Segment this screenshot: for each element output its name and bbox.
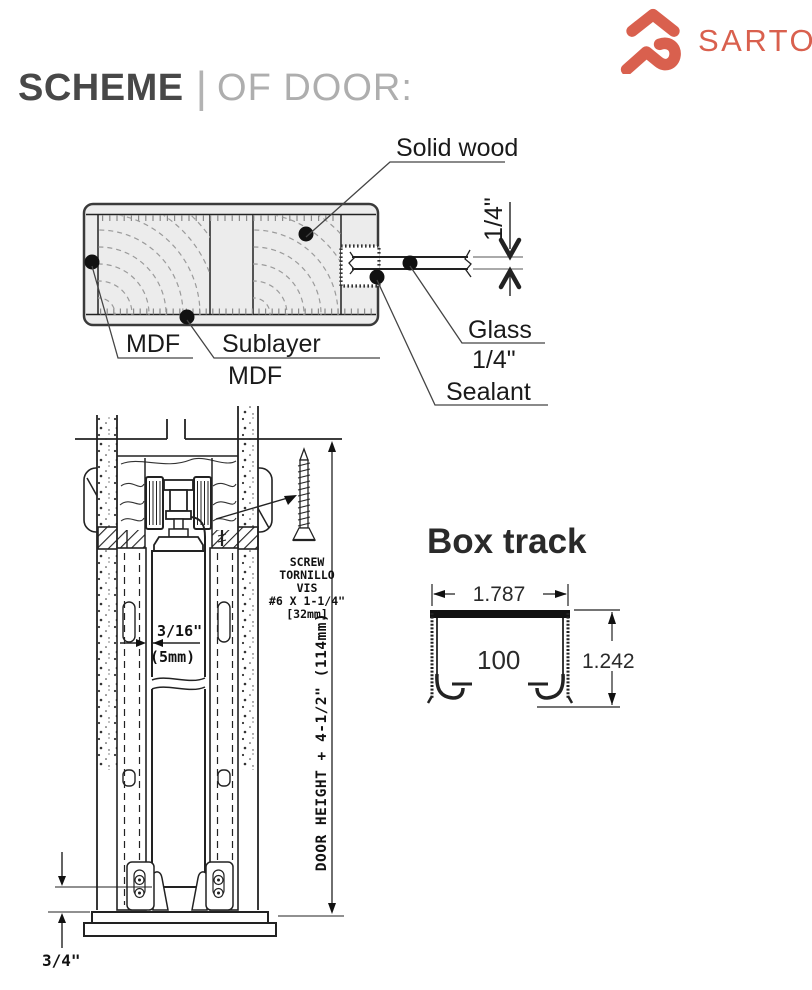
label-screw-line5: [32mm] (286, 607, 328, 621)
track-mechanism-diagram: 3/16" (5mm) 3/4" DOOR HEIGHT + 4-1/2" (1… (42, 406, 345, 970)
callout-dot-sealant (370, 270, 385, 285)
label-glass-thickness: 1/4" (480, 197, 508, 241)
label-door-height: DOOR HEIGHT + 4-1/2" (114mm) (314, 613, 330, 871)
callout-dot-solid-wood (299, 227, 314, 242)
box-track-height-label: 1.242 (582, 650, 635, 673)
hatch-block-left (98, 527, 146, 549)
door-height-dimension: DOOR HEIGHT + 4-1/2" (114mm) (278, 441, 344, 916)
door-section-body (84, 204, 378, 325)
label-solid-wood: Solid wood (396, 134, 518, 162)
scheme-of-door-page: SCHEME | OF DOOR: SARTO (0, 0, 812, 990)
floor-plate-bottom (84, 923, 276, 936)
label-screw-line2: TORNILLO (279, 568, 334, 582)
door-panel (152, 551, 205, 887)
label-sublayer-line2: MDF (228, 362, 282, 390)
label-screw-line1: SCREW (290, 555, 325, 569)
box-track-width-dimension: 1.787 (432, 583, 568, 606)
label-mdf: MDF (126, 330, 180, 358)
wall-stud-left (97, 415, 117, 770)
box-track-height-dimension: 1.242 (537, 610, 635, 707)
label-sublayer-line1: Sublayer (222, 330, 321, 358)
glass-thickness-dimension: 1/4" (480, 197, 519, 296)
label-glass-line2: 1/4" (472, 346, 516, 374)
floor-plate-top (92, 912, 268, 923)
label-gap-inches: 3/16" (157, 622, 202, 640)
label-screw-line4: #6 X 1-1/4" (269, 594, 345, 608)
box-track-profile: 100 (428, 610, 572, 703)
box-track-width-label: 1.787 (473, 583, 526, 606)
schematic-canvas: 1/4" Solid wood MDF Sub (0, 0, 812, 990)
hatch-block-right (210, 527, 258, 549)
label-floor-clearance: 3/4" (42, 951, 81, 970)
wall-stud-right (238, 406, 258, 770)
callout-dot-glass (403, 256, 418, 271)
label-screw-line3: VIS (297, 581, 318, 595)
callout-dot-sublayer (180, 310, 195, 325)
label-glass-line1: Glass (468, 316, 532, 344)
label-sealant: Sealant (446, 378, 531, 406)
door-cross-section-diagram: 1/4" Solid wood MDF Sub (0, 134, 548, 449)
box-track-diagram: Box track 100 (427, 522, 635, 707)
label-gap-mm: (5mm) (150, 648, 195, 666)
box-track-inner-label: 100 (477, 645, 520, 675)
box-track-title: Box track (427, 522, 587, 561)
